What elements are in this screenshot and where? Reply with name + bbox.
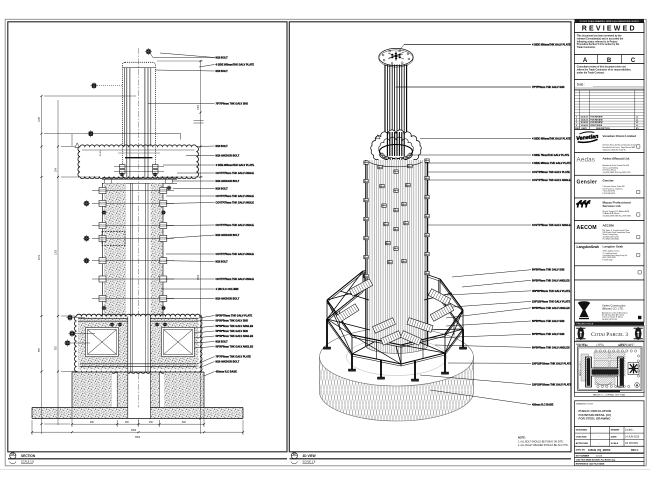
svg-text:150*150*10mm THK GALV PLATE: 150*150*10mm THK GALV PLATE [532,362,572,365]
svg-text:4 SIDE 950mmTHK GALV PLATE: 4 SIDE 950mmTHK GALV PLATE [532,138,571,141]
svg-text:30-04-10: 30-04-10 [581,121,589,124]
svg-text:PARCEL 1, LOT 3: PARCEL 1, LOT 3 [618,344,633,347]
svg-text:4 150 R.C COLUMN: 4 150 R.C COLUMN [216,288,239,291]
svg-text:A: A [583,58,588,64]
svg-text:450: 450 [125,422,130,424]
svg-text:Aedas: Aedas [577,157,596,164]
svg-text:M16 ANCHOR BOLT: M16 ANCHOR BOLT [216,180,240,183]
svg-text:2950: 2950 [131,430,137,432]
svg-text:22-06-10: 22-06-10 [581,117,589,119]
svg-text:75*75*6mm THK GALV SHS: 75*75*6mm THK GALV SHS [216,103,249,106]
svg-text:50*50*5mm THK GALV ANGLES: 50*50*5mm THK GALV ANGLES [532,279,570,282]
svg-text:304: 304 [56,167,58,172]
svg-text:50*50*5mm THK GALV ANGLES: 50*50*5mm THK GALV ANGLES [216,335,254,338]
svg-text:50*50*5mm THK GALV ANGLES: 50*50*5mm THK GALV ANGLES [532,346,570,349]
svg-text:150*150*6mm THK GALV PLATE: 150*150*6mm THK GALV PLATE [532,300,570,303]
svg-text:DRAWING TITLE: DRAWING TITLE [576,403,594,406]
svg-text:FOR REVIEW: FOR REVIEW [591,119,603,121]
svg-text:COVTP75mm THK GALV ANGLE: COVTP75mm THK GALV ANGLE [216,224,255,227]
svg-text:DESIGNED: DESIGNED [576,430,588,432]
svg-text:1. ALL BOLT SHOULD BE FIXING O: 1. ALL BOLT SHOULD BE FIXING ON SITE. [518,441,564,444]
svg-text:420mm R.C BASE: 420mm R.C BASE [216,371,238,374]
svg-text:COVTP75mm THK GALV ANGLE: COVTP75mm THK GALV ANGLE [216,172,255,175]
svg-text:1: 1 [576,122,577,124]
svg-text:M16 BOLT: M16 BOLT [216,261,229,264]
svg-text:50*50*5mm THK GALV ANGLES: 50*50*5mm THK GALV ANGLES [532,307,570,310]
svg-text:Trade Contractor.: Trade Contractor. [577,46,596,49]
svg-text:14-05-10: 14-05-10 [581,118,589,121]
svg-text:420mm R.C BASE: 420mm R.C BASE [532,404,554,407]
svg-text:M16 BOLT: M16 BOLT [216,188,229,191]
svg-text:4 SIDE 950mmTHK GALV PLATE: 4 SIDE 950mmTHK GALV PLATE [532,44,571,47]
svg-text:M16 BOLT: M16 BOLT [216,145,229,148]
svg-text:Aedas (Macau) Ltd.: Aedas (Macau) Ltd. [603,157,631,161]
svg-text:800: 800 [182,422,187,424]
svg-text:40 60: 40 60 [100,150,102,156]
svg-text:50*50*5mm THK GALV SHS: 50*50*5mm THK GALV SHS [532,269,565,272]
svg-text:M16 BOLT: M16 BOLT [216,57,229,60]
svg-text:M16 BOLT: M16 BOLT [216,70,229,73]
svg-text:14-JUN-2010: 14-JUN-2010 [625,435,640,438]
svg-text:3D VIEW: 3D VIEW [303,454,316,458]
svg-text:4 SIDE 950mm THK GALV PLATE: 4 SIDE 950mm THK GALV PLATE [532,162,572,165]
svg-text:under the Trade Contract.: under the Trade Contract. [577,71,605,74]
svg-text:2. ALL FILLET WELDED SHOULD BE: 2. ALL FILLET WELDED SHOULD BE 3mm THK. [518,444,569,447]
svg-text:Consultant review of this: Consultant review of this document does … [577,66,626,69]
svg-text:KEY PLAN: KEY PLAN [578,344,589,347]
svg-text:Gensler: Gensler [603,179,615,183]
svg-text:150*150*10mm THK GALV PLATE: 150*150*10mm THK GALV PLATE [532,384,572,387]
svg-text:01: 01 [11,452,14,456]
svg-text:AECOM: AECOM [577,225,597,231]
svg-text:relieve the Trade Contracto: relieve the Trade Contractor of its resp… [577,69,632,72]
svg-text:NOTE:: NOTE: [518,437,526,440]
svg-text:C: C [631,58,636,64]
svg-text:APPROVED: APPROVED [576,442,589,445]
svg-text:F 415.836.4599: F 415.836.4599 [603,193,616,195]
svg-text:1390: 1390 [56,249,58,255]
svg-text:2: 2 [576,119,577,121]
svg-text:3950: 3950 [135,437,141,439]
svg-text:SCALE 1:8: SCALE 1:8 [21,460,34,464]
svg-text:Langdon Seah: Langdon Seah [603,244,624,248]
svg-text:SCALE 1:8: SCALE 1:8 [303,460,316,464]
svg-text:COVTP75mm THK GALV ANGLE: COVTP75mm THK GALV ANGLE [532,179,571,182]
svg-text:REVIEWED: REVIEWED [582,25,637,32]
svg-text:PARCEL 1, LOT 1: PARCEL 1, LOT 1 [579,362,582,376]
svg-text:50*50*5mm THK GALV SHS: 50*50*5mm THK GALV SHS [216,330,249,333]
svg-text:M16 BOLT: M16 BOLT [216,341,229,344]
svg-text:COVTP75mm THK GALV ANGLE: COVTP75mm THK GALV ANGLE [216,195,255,198]
svg-text:CHECKED: CHECKED [576,436,587,438]
svg-text:M16 ANCHOR BOLT: M16 ANCHOR BOLT [216,234,240,237]
svg-text:50*50*5mm THK GALV SHS: 50*50*5mm THK GALV SHS [216,320,249,323]
svg-text:CAD FILE NAME B315UB_PQ_B5050: CAD FILE NAME B315UB_PQ_B5050.dwg [576,459,616,462]
svg-text:M16 ANCHOR BOLT: M16 ANCHOR BOLT [216,155,240,158]
svg-text:Tel (853) 2875 2733: Tel (853) 2875 2733 [602,319,617,321]
svg-text:LucasLi: LucasLi [625,429,634,432]
svg-text:F 2576 0416: F 2576 0416 [603,259,613,261]
svg-text:555: 555 [39,347,41,352]
svg-text:75*75*6mm THK GALV SHS: 75*75*6mm THK GALV SHS [532,86,565,89]
svg-text:4 SIDE 75mmTHK GALV PLATE: 4 SIDE 75mmTHK GALV PLATE [532,154,569,157]
svg-text:3: 3 [576,117,577,119]
svg-text:FOR STEEL DRAWING: FOR STEEL DRAWING [579,417,612,421]
svg-text:75*75*6mm THK GALV PLATE: 75*75*6mm THK GALV PLATE [216,356,252,359]
svg-text:Procedure Section 5.4 for ac: Procedure Section 5.4 for action by the [577,43,620,46]
svg-text:AS SHOWN: AS SHOWN [625,442,638,445]
svg-text:1350: 1350 [198,104,200,110]
svg-text:following status referred to: following status referred to in Project [577,40,618,43]
svg-text:FIRST ISSUE: FIRST ISSUE [591,125,603,127]
svg-text:DATE: DATE [611,435,617,438]
svg-text:2700: 2700 [39,254,41,260]
svg-text:PARCEL 3 — OVERALL KEY PLAN: PARCEL 3 — OVERALL KEY PLAN [593,394,626,397]
svg-text:4 SIDE 950mmTHK GALV PLATE: 4 SIDE 950mmTHK GALV PLATE [216,64,255,67]
svg-text:4 SIDE 950mmTHK GALV PLATE: 4 SIDE 950mmTHK GALV PLATE [216,164,255,167]
svg-text:315UB_PQ_B5050: 315UB_PQ_B5050 [588,448,611,452]
svg-text:This document has been rev: This document has been reviewed by the [577,35,623,38]
svg-text:AECOM: AECOM [603,223,615,227]
svg-text:Fax (852) 2353 8605: Fax (852) 2353 8605 [603,239,620,241]
svg-text:COVTP75mm THK GALV ANGLE: COVTP75mm THK GALV ANGLE [216,278,255,281]
svg-text:COVTP75mm THK GALV ANGLE: COVTP75mm THK GALV ANGLE [216,253,255,256]
svg-text:Tel (853) 2878 3396 Fax 2878 3: Tel (853) 2878 3396 Fax 2878 3392 [603,215,631,217]
svg-text:FOR REVIEW: FOR REVIEW [591,122,603,124]
svg-text:Venetian Orient Limited: Venetian Orient Limited [603,134,637,138]
svg-text:0: 0 [576,125,577,127]
svg-text:REV C: REV C [631,449,639,452]
svg-text:relevant Consultant(s) and i: relevant Consultant(s) and is accorded t… [577,37,624,40]
svg-text:1188: 1188 [39,116,41,122]
svg-text:REFERENCE CAD FILE NAME: REFERENCE CAD FILE NAME [576,463,605,466]
svg-text:50*50*5mm THK GALV SHS: 50*50*5mm THK GALV SHS [532,333,565,336]
svg-text:800: 800 [90,422,95,424]
svg-text:Gensler: Gensler [577,180,598,186]
svg-text:Date :: Date : [577,83,586,87]
svg-text:COVTP75mm THK GALV ANGLE: COVTP75mm THK GALV ANGLE [532,224,571,227]
svg-text:450: 450 [149,422,154,424]
svg-text:LangdonSeah: LangdonSeah [577,245,599,249]
svg-text:DRAWN: DRAWN [611,429,620,432]
svg-text:DWG NO: DWG NO [576,450,586,452]
svg-text:(Macau) CO. LTD.: (Macau) CO. LTD. [602,307,624,311]
svg-text:50*50*75mm THK GALV PLATE: 50*50*75mm THK GALV PLATE [216,315,253,318]
svg-text:FOR REVIEW: FOR REVIEW [591,117,603,119]
svg-text:M16 ANCHOR BOLT: M16 ANCHOR BOLT [216,298,240,301]
svg-text:COVTP50mm THK GALV PLATE: COVTP50mm THK GALV PLATE [532,171,570,174]
svg-text:50*50*5mm THK GALV ANGLES: 50*50*5mm THK GALV ANGLES [216,325,254,328]
svg-text:B: B [607,58,612,64]
svg-text:Telephone (853) 81 18 28 38: Telephone (853) 81 18 28 38 [603,149,626,151]
svg-text:50*50*5mm THK GALV SHS: 50*50*5mm THK GALV SHS [532,320,565,323]
svg-text:SECTION: SECTION [21,454,36,458]
svg-text:SCALE: SCALE [611,442,619,445]
svg-text:0 1 2 5 10: 0 1 2 5 10 [596,345,604,347]
svg-text:12-04-10: 12-04-10 [581,124,589,127]
svg-text:Services Ltd.: Services Ltd. [603,204,622,208]
svg-text:COVTP75mm THK GALV ANGLE: COVTP75mm THK GALV ANGLE [216,202,255,205]
svg-text:Tel (853) 2833 1113 Fax 2833 1: Tel (853) 2833 1113 Fax 2833 1115 [603,172,631,174]
svg-text:555: 555 [56,345,58,350]
svg-text:450*50*50mm THK GALV PLATE: 450*50*50mm THK GALV PLATE [532,290,570,293]
svg-text:50*50*5mm THK GALV ANGLES: 50*50*5mm THK GALV ANGLES [216,346,254,349]
svg-text:02: 02 [293,452,296,456]
svg-text:M16 ANCHOR BOLT: M16 ANCHOR BOLT [216,361,240,364]
